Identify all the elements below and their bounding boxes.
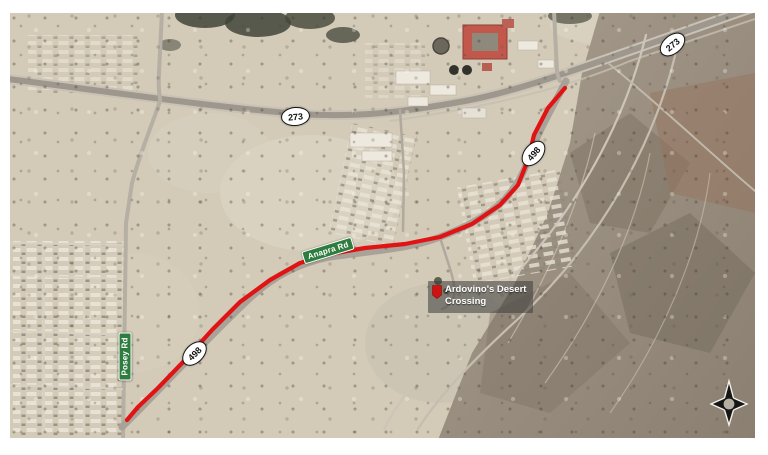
shield-number: 273 xyxy=(288,111,304,122)
poi-label-ardovinos-desert-crossing: Ardovino's Desert Crossing xyxy=(428,281,533,313)
shield-number: 498 xyxy=(525,145,542,163)
shield-number: 498 xyxy=(186,345,204,363)
poi-name: Ardovino's Desert Crossing xyxy=(445,284,526,309)
compass-rose-icon xyxy=(711,381,747,425)
location-marker-icon xyxy=(432,285,442,299)
street-sign-label: Posey Rd xyxy=(121,337,130,375)
satellite-map: 273 273 498 498 Anapra Rd Posey Rd Ardov… xyxy=(10,13,755,438)
shield-number: 273 xyxy=(664,36,682,53)
poi-name-line2: Crossing xyxy=(445,296,526,308)
map-figure: 273 273 498 498 Anapra Rd Posey Rd Ardov… xyxy=(0,0,768,455)
street-sign-posey-rd: Posey Rd xyxy=(119,332,132,380)
poi-name-line1: Ardovino's Desert xyxy=(445,284,526,296)
highlighted-route xyxy=(127,88,565,420)
